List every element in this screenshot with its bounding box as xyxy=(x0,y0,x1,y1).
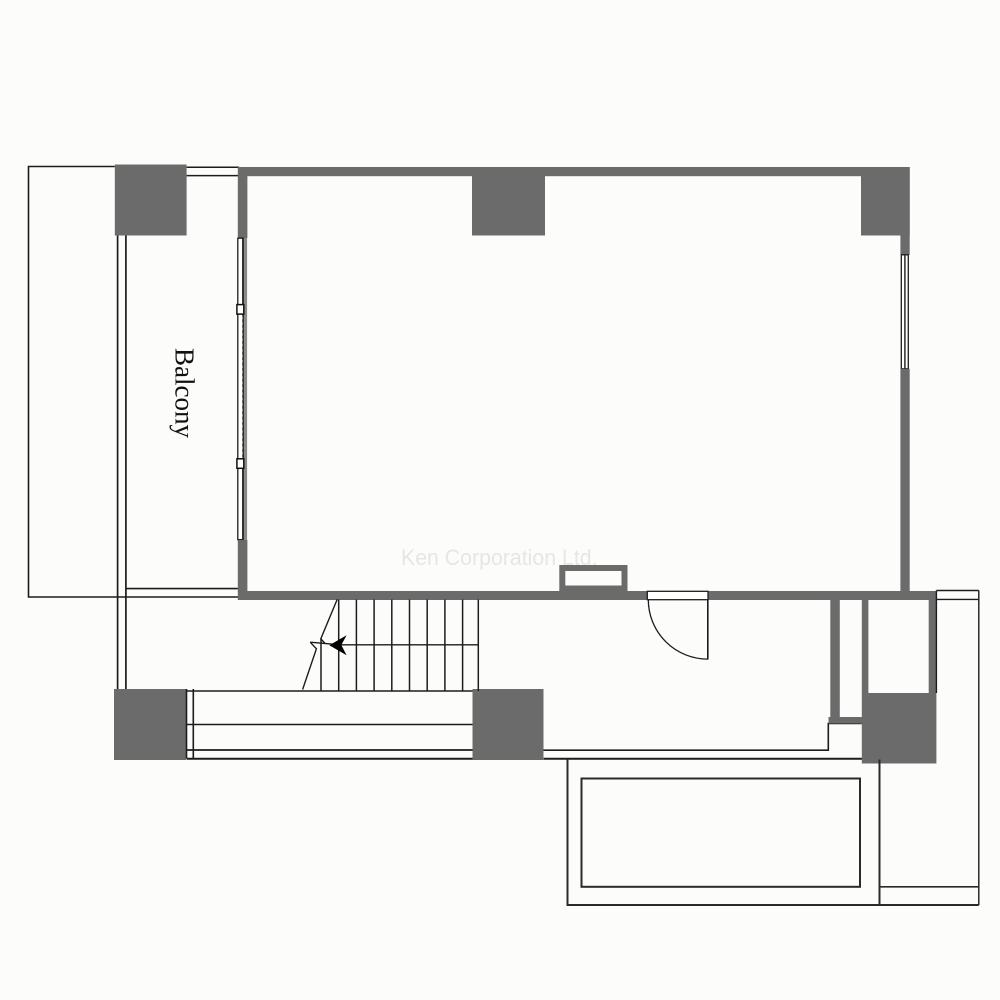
svg-text:Balcony: Balcony xyxy=(170,348,200,438)
